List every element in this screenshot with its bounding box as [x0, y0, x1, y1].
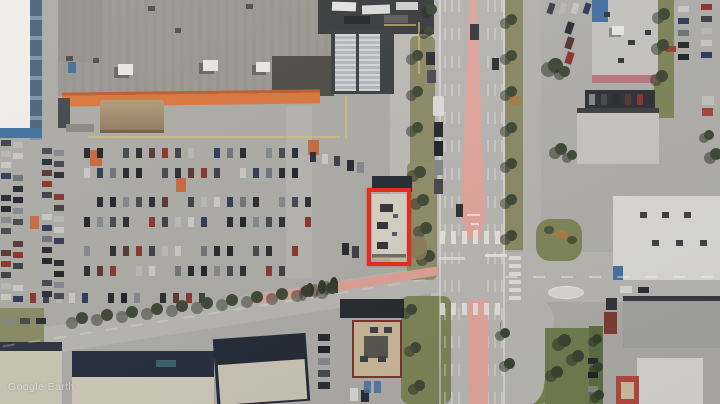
tone-overlay: [0, 0, 720, 404]
highlight-rectangle: [367, 188, 411, 266]
map-canvas[interactable]: Google Earth: [0, 0, 720, 404]
watermark-google-earth: Google Earth: [8, 381, 75, 393]
